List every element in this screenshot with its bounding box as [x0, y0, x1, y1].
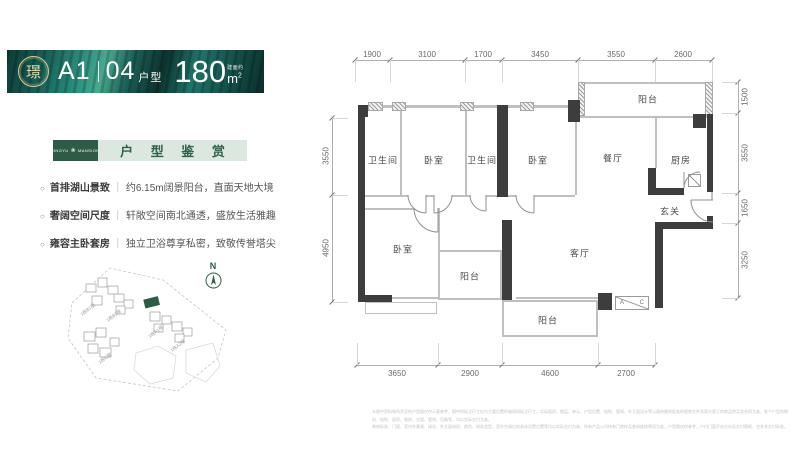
- unit-m: m: [227, 71, 238, 86]
- door-arc-kitchen: [684, 172, 700, 188]
- highlighted-building: [143, 296, 160, 308]
- amenity-outline: [186, 343, 220, 382]
- building-cluster-c: [84, 328, 119, 357]
- room-label-kitchen: 厨房: [671, 154, 691, 167]
- unit-sup: 2: [238, 73, 242, 80]
- feature-separator: ｜: [113, 207, 123, 222]
- feature-title: 首排湖山景致: [50, 179, 110, 194]
- badge-emblem-icon: ❀: [71, 147, 76, 154]
- disclaimer-line-2: 装修标准、门窗、室内外景观、绿化、外立面材质、颜色、线条造型、室外空调位的具体设…: [372, 423, 790, 431]
- floor-plan: 1900 3100 1700 3450 3550 2600 3650 2900 …: [330, 50, 790, 400]
- disclaimer-line-1: 本图中资料和所涉及的户型图仅供示意参考，图中所标注尺寸仅为主要位置的轴线间标注尺…: [372, 408, 790, 423]
- room-label-dining: 餐厅: [603, 152, 623, 165]
- room-label-bed2: 卧室: [528, 154, 548, 167]
- room-label-bed3: 卧室: [393, 243, 413, 256]
- seal-character: 璟: [26, 61, 41, 82]
- banner-divider: [98, 61, 99, 82]
- bullet-icon: ○: [40, 212, 45, 221]
- room-label-living: 客厅: [570, 247, 590, 260]
- room-label-balcony-small: 阳台: [460, 270, 480, 283]
- brand-badge: JINGYU ❀ MANSION: [53, 140, 98, 161]
- feature-item: ○ 首排湖山景致 ｜ 约6.15m阔景阳台，直面天地大境: [40, 179, 296, 194]
- feature-title: 奢阔空间尺度: [50, 207, 110, 222]
- room-label-balcony-bottom: 阳台: [538, 314, 558, 327]
- badge-left-text: JINGYU: [52, 148, 69, 153]
- section-title: 户 型 鉴 赏: [98, 140, 247, 161]
- area-value: 180: [174, 56, 226, 87]
- room-label-foyer: 玄关: [660, 205, 680, 218]
- poster-page: 璟 A1 04 户型 180 建面约 m2 JINGYU ❀ MANSION 户…: [0, 0, 800, 449]
- amenity-outline: [134, 346, 176, 384]
- area-group: 180 建面约 m2: [174, 56, 243, 87]
- brand-seal-logo: 璟: [18, 56, 49, 87]
- building-cluster-b1: [86, 278, 118, 305]
- unit-banner: 璟 A1 04 户型 180 建面约 m2: [7, 50, 264, 93]
- feature-title: 雍容主卧套房: [50, 235, 110, 250]
- feature-desc: 轩敞空间南北通透，盛放生活雅趣: [126, 207, 276, 222]
- badge-right-text: MANSION: [78, 148, 99, 153]
- feature-separator: ｜: [113, 235, 123, 250]
- feature-desc: 约6.15m阔景阳台，直面天地大境: [126, 179, 274, 194]
- site-plan-map: 1栋B1座 1栋B2座 1栋C座 1栋A1座 1栋A2座: [58, 258, 236, 403]
- feature-separator: ｜: [113, 179, 123, 194]
- feature-item: ○ 雍容主卧套房 ｜ 独立卫浴尊享私密，致敬传誉塔尖: [40, 235, 296, 250]
- unit-code: A1: [58, 59, 91, 84]
- disclaimer-text: 本图中资料和所涉及的户型图仅供示意参考，图中所标注尺寸仅为主要位置的轴线间标注尺…: [372, 408, 790, 431]
- door-arc-bed1: [434, 195, 452, 213]
- door-arc-entry: [691, 200, 713, 222]
- unit-type-number: 04: [106, 59, 136, 84]
- feature-desc: 独立卫浴尊享私密，致敬传誉塔尖: [126, 235, 276, 250]
- area-unit: 建面约 m2: [227, 66, 244, 87]
- bullet-icon: ○: [40, 184, 45, 193]
- feature-item: ○ 奢阔空间尺度 ｜ 轩敞空间南北通透，盛放生活雅趣: [40, 207, 296, 222]
- room-label-bath1: 卫生间: [368, 154, 398, 167]
- room-label-balcony-top: 阳台: [638, 93, 658, 106]
- area-prefix: 建面约: [227, 66, 244, 71]
- room-label-bath2: 卫生间: [467, 154, 497, 167]
- unit-type-label: 户型: [138, 69, 162, 85]
- door-arcs: [330, 50, 790, 400]
- feature-list: ○ 首排湖山景致 ｜ 约6.15m阔景阳台，直面天地大境 ○ 奢阔空间尺度 ｜ …: [40, 179, 296, 263]
- door-arc-bath1: [408, 195, 426, 213]
- site-plan: 1栋B1座 1栋B2座 1栋C座 1栋A1座 1栋A2座: [58, 258, 236, 408]
- area-unit-m2: m2: [227, 72, 242, 85]
- door-arc-bed2: [516, 195, 534, 213]
- door-arc-bath2: [470, 195, 486, 211]
- room-label-bed1: 卧室: [424, 154, 444, 167]
- bullet-icon: ○: [40, 240, 45, 249]
